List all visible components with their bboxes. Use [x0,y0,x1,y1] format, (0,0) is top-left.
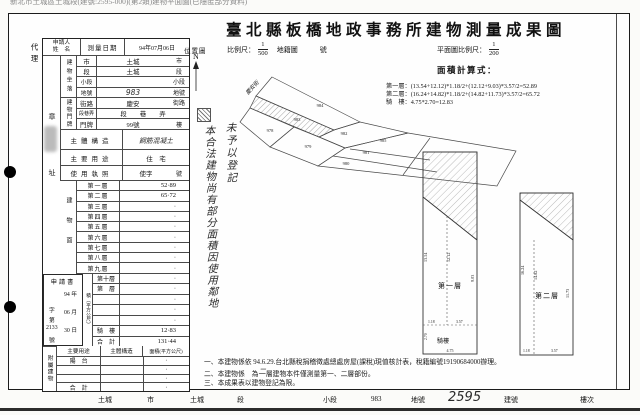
floor-area-value: 131·44 [120,337,189,346]
parcel-984-label: 984 [317,103,325,108]
area-row: 第 層 · [93,284,189,294]
parcel-982-label: 982 [341,131,348,136]
area-rows-lower: 第十層 · 第 層 · · · [93,274,189,346]
annex-area: · [144,357,189,365]
area-row: 騎 樓 12·83 [93,326,189,336]
floor1-dim-arcade-height: 2.70 [424,333,428,340]
area-row: · [93,316,189,326]
floor2-dim-seg2: 3.57 [551,349,558,353]
section-suffix: 段 [169,67,189,76]
applicant-name-label: 申請人 姓 名 [43,39,81,56]
note2-handwritten: 二 [258,367,266,376]
area-row: 第十層 · [93,274,189,284]
area-row: 第四層 · [77,212,189,222]
floor1-dim-seg2: 3.57 [456,320,463,324]
building-area-spine-bottom: 積（平方公尺） [83,274,93,346]
floor-area-value: · [120,232,189,241]
floor-area-value: 12·83 [120,326,189,335]
north-arrow-icon [191,61,201,93]
area-row: 第八層 · [77,253,189,263]
floor-area-value: · [120,316,189,325]
punch-hole-bottom [4,301,16,313]
floor2-unregistered-hatch [520,193,573,240]
subsection-label: 小段 [77,77,97,88]
annex-building-spine: 附屬建物 [43,346,57,391]
footer-building-number-label: 建號 [504,395,518,405]
seal-label: 章 [43,111,61,123]
sheet-number-label: 號 [320,45,327,55]
plan-scale-fraction: 1 200 [489,42,499,57]
parcel-978-label: 978 [267,128,275,133]
application-receipt-box: 申請書 字 第 2133 號 94 年 06 月 30 日 [43,274,83,346]
floor-area-value: · [120,263,189,272]
seal-stamp [44,126,57,152]
note2-prefix: 二、本建物係 為 [204,371,258,378]
floor1-dim-width: 4.75 [447,348,454,353]
app-day: 30 日 [64,325,77,334]
parcel-980-label: 980 [343,161,351,166]
parcel-983-label: 983 [294,117,302,122]
note-line-3: 三、本成果表以建物登記為限。 [204,379,501,388]
main-structure-label: 主體構造 [61,130,123,150]
scale-numerator: 1 [261,41,264,48]
floor-label: 第五層 [77,222,120,231]
floor-label [93,305,120,314]
building-location-spine: 建物坐落 [61,56,77,98]
subsection-suffix: 小段 [169,77,189,86]
cadastral-map-label: 地籍圖 [277,45,298,55]
floor2-plan: 第二層 16.24 14.82 11.73 1.18 3.57 [520,193,573,355]
floor1-unregistered-hatch [423,152,477,240]
address-label: 址 [43,167,61,179]
floor1-arcade-label: 騎樓 [437,337,449,345]
floor1-label: 第一層 [438,281,462,290]
annex-structure [101,357,143,365]
annex-rows: 陽 台 · · · 合 計 [57,357,189,391]
floor2-dim-inner: 14.82 [533,271,538,280]
north-label: N [193,52,199,61]
annex-usage: 陽 台 [57,357,101,365]
app-day-unit: 日 [71,328,77,334]
floor2-dim-right: 11.73 [565,289,570,298]
floor-area-value: · [120,295,189,304]
survey-date-label: 測量日期 [81,39,125,56]
area-row: 第二層 65·72 [77,191,189,201]
city-suffix: 市 [169,56,189,65]
use-license-label: 使用執照 [61,166,123,181]
footer-section-value: 土城 [190,395,204,405]
annex-structure [101,366,143,374]
annex-structure [101,375,143,383]
area-row: 第三層 · [77,202,189,212]
floor1-dim-seg1: 1.18 [428,320,435,324]
floor-label: 第六層 [77,232,120,241]
app-month-value: 06 [64,310,70,316]
annex-row: · [57,366,189,375]
annex-usage [57,366,101,374]
annex-structure-header: 主體構造 [101,346,143,357]
floor1-dim-right: 9.03 [470,275,475,282]
punch-hole-top [4,166,16,178]
footer-floor-label: 樓次 [580,395,594,405]
section-value: 土城 [97,66,169,76]
use-license-value: 使字 [123,168,169,178]
footer-city-value: 土城 [98,395,112,405]
annex-usage-header: 主要用途 [57,346,101,357]
scale-label: 比例尺： [227,45,255,55]
floor2-label: 第二層 [535,291,559,300]
floor2-dim-seg1: 1.18 [523,349,530,353]
right-margin-line [616,14,617,389]
app-no-label: 第 [49,315,55,324]
footer-city-label: 市 [147,395,154,405]
parcel-985-label: 985 [380,138,388,143]
area-row: · [93,305,189,315]
floor-label: 第八層 [77,253,120,262]
parcel-982-shape [319,122,408,148]
floor-label: 第七層 [77,243,120,252]
parcel-981-label: 981 [363,150,370,155]
annex-row: 陽 台 · [57,357,189,366]
city-value: 土城 [97,56,169,66]
note-line-1: 一、本建物係依 94.6.29.台北縣稅捐稽徵處總處房屋(課稅)現值核計表，稅籍… [204,358,501,367]
annex-area: · [144,383,189,391]
scale-denominator: 500 [258,49,268,58]
doorplate-value-cell: 99號 樓 [97,119,189,130]
floor-area-value: · [120,202,189,211]
note2-suffix: 層建物本件僅測量第一、二層部份。 [266,371,375,378]
parcel-number-cell: 983 地號 [97,88,189,99]
survey-date-value: 94年07月06日 [125,39,189,56]
annex-area: · [144,366,189,374]
building-area-spine-top: 建物面 [61,181,77,274]
footer-subsection-label: 小段 [323,395,337,405]
doorplate-suffix: 樓 [169,120,189,129]
annex-structure [101,383,143,391]
main-usage-value: 住 宅 [123,150,189,166]
plan-scale-denominator: 200 [489,49,499,58]
app-year-unit: 年 [71,292,77,298]
footer-section-label: 段 [237,395,244,405]
annex-usage: 合 計 [57,383,101,391]
floor-area-value: · [120,243,189,252]
floor-area-value: · [120,212,189,221]
floor-area-value: · [120,274,189,283]
note-line-2: 二、本建物係 為二層建物本件僅測量第一、二層部份。 [204,367,501,379]
annex-area-header: 面積(平方公尺) [143,346,189,357]
app-month-unit: 月 [71,310,77,316]
annotation-column-right: 未予以登記 [223,122,239,185]
street-label: 街路 [77,98,97,109]
floor1-dim-left: 13.54 [423,252,428,262]
plan-scale-numerator: 1 [492,41,495,48]
area-rows-upper: 第一層 52·89 第二層 65·72 第三層 · 第四層 · [77,181,189,274]
lane-alley-label: 段巷弄 [77,109,97,120]
section-value-cell: 土城 段 [97,67,189,78]
floor-label: 第四層 [77,212,120,221]
floor-label [93,295,120,304]
floor2-dim-left: 16.24 [520,265,525,275]
use-license-cell: 使字 號 [123,166,189,181]
footer-parcel-label: 地號 [411,395,425,405]
agent-label: 代理 [29,43,40,66]
street-value: 慶安 [97,98,169,108]
main-structure-value: 鋼筋混凝土 [123,130,189,150]
parcel-number-label: 地號 [77,88,97,99]
floor-label: 第十層 [93,274,120,283]
annex-area: · [144,375,189,383]
annex-row: 合 計 · [57,383,189,391]
applicant-label-line1: 申請人 [53,40,70,47]
area-row: · [93,295,189,305]
app-year-value: 94 [64,292,70,298]
floor-plans: 第一層 騎樓 13.54 12.12 9.03 1.18 3.57 2.70 4… [415,145,585,358]
app-number: 2133 [46,325,58,331]
floor-label [93,316,120,325]
footer-parcel-number: 983 [371,395,382,403]
app-day-value: 30 [64,328,70,334]
floor-label: 合 計 [93,337,120,346]
floor-label: 第九層 [77,263,120,272]
area-row: 第一層 52·89 [77,181,189,191]
floor-label: 第三層 [77,202,120,211]
street-value-cell: 慶安 街路 [97,98,189,109]
area-row: 合 計 131·44 [93,337,189,346]
app-year: 94 年 [64,289,77,298]
area-row: 第六層 · [77,232,189,242]
page-title: 臺北縣板橋地政事務所建物測量成果圖 [226,18,566,40]
applicant-label-line2: 姓 名 [53,47,70,54]
annotation-column-left: 本合法建物尚有部分面積因使用鄰地 [202,125,220,309]
parcel-number-suffix: 地號 [169,88,189,97]
floor-area-value: · [120,284,189,293]
street-suffix: 街路 [169,98,189,107]
parcel-number-value: 983 [97,88,169,97]
lane-alley-value: 段 巷 弄 [97,109,189,120]
notes-block: 一、本建物係依 94.6.29.台北縣稅捐稽徵處總處房屋(課稅)現值核計表，稅籍… [204,358,501,389]
parcel-979-label: 979 [305,144,313,149]
city-value-cell: 土城 市 [97,56,189,67]
area-row: 第九層 · [77,263,189,273]
plan-scale-row: 平面圖比例尺： 1 200 [437,42,502,57]
top-margin-text: 新北市土城區土城段(建號:2595-000)(第2類)建物平面圖(已隱匿部分資料… [10,0,247,7]
app-month: 06 月 [64,307,77,316]
floor-area-value: 65·72 [120,191,189,200]
subsection-value-cell: 小段 [97,77,189,88]
floor-area-value: · [120,222,189,231]
area-row: 第五層 · [77,222,189,232]
hatch-legend-swatch [197,108,211,122]
scanned-survey-document: 新北市土城區土城段(建號:2595-000)(第2類)建物平面圖(已隱匿部分資料… [0,0,640,415]
doorplate-label: 門牌 [77,119,97,130]
use-license-suffix: 號 [169,169,189,178]
plan-scale-label: 平面圖比例尺： [437,45,486,55]
application-table: 申請人 姓 名 測量日期 94年07月06日 章 址 建物坐落 市 土城 市 段… [42,38,190,392]
floor-area-value: · [120,253,189,262]
doorplate-value: 99號 [97,119,169,129]
floor-label: 第一層 [77,181,120,190]
floor-area-value: · [120,305,189,314]
area-row: 第七層 · [77,243,189,253]
road-label: 慶安街 [244,78,261,96]
doorplate-spine: 建物門牌 [61,98,77,130]
floor-label: 第二層 [77,191,120,200]
city-label: 市 [77,56,97,67]
application-title: 申請書 [44,277,82,286]
main-usage-label: 主要用途 [61,150,123,166]
floor-label: 第 層 [93,284,120,293]
bottom-rule [0,408,640,411]
cadastral-scale-row: 比例尺： 1 500 地籍圖 號 [227,42,327,57]
section-label: 段 [77,67,97,78]
floor1-dim-inner: 12.12 [446,253,451,262]
floor-area-value: 52·89 [120,181,189,190]
footer-building-number-handwritten: 2595 [448,390,481,405]
app-word-label: 字 [49,305,55,314]
annex-usage [57,375,101,383]
floor1-plan: 第一層 騎樓 13.54 12.12 9.03 1.18 3.57 2.70 4… [423,152,477,354]
floor-label: 騎 樓 [93,326,120,335]
scale-fraction: 1 500 [258,42,268,57]
app-no-suffix: 號 [49,335,55,344]
